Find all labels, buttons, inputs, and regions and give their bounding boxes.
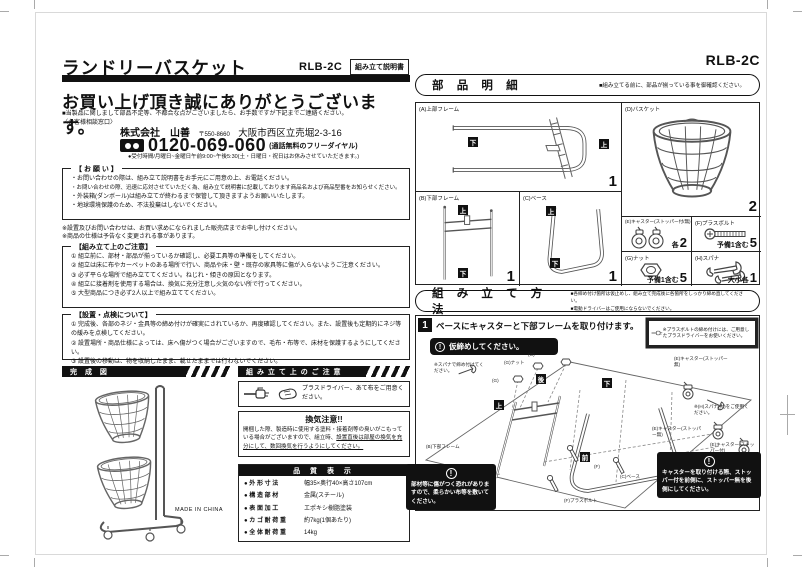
freedial-icon	[120, 139, 144, 152]
quality-value: 約7kg(1個あたり)	[304, 517, 351, 526]
quality-label: ● 外 形 寸 法	[244, 480, 304, 489]
part-qty: 各2	[672, 235, 687, 250]
caution-left-text: 部材等に傷がつく恐れがありますので、柔らかい布等を敷いてください。	[411, 482, 489, 505]
part-cell-a: (A)上部フレーム 下 上 1	[416, 103, 621, 191]
part-qty: 予備1含む5	[647, 270, 687, 285]
stripe-decoration	[186, 366, 230, 377]
request-item: ・地球環境保護のため、不法投棄はしないでください。	[71, 202, 403, 211]
step-number: 1	[418, 318, 432, 332]
assembly-caution-item: ④ 組立に接着剤を使用する場合は、換気に充分注意し火気のない所で行ってください。	[71, 281, 403, 290]
finished-figure-header: 完 成 図	[62, 366, 230, 377]
assembly-note-2: ■電動ドライバーはご使用にならないでください。	[571, 305, 747, 312]
assembly-header-notes: ■各締め付け箇所は仮止めし、組み立て完成後に各箇所をしっかり締め直してください。…	[571, 290, 747, 312]
diagram-label-nut: (G)ナット	[504, 360, 524, 366]
tool-note-text: ※プラスボルトの締め付けには、ご用意したプラスドライバーをお使いください。	[663, 327, 753, 340]
part-qty-prefix: 各	[672, 242, 679, 249]
inspection-box: 【設置・点検について】 ① 完成後、各部のネジ・金具等の締め付けが確実にされてい…	[62, 314, 410, 360]
reception-hours: ●受付時間/月曜日~金曜日午前9:00~午後5:30(土・日曜日・祝日はお休みさ…	[128, 153, 408, 161]
made-in-label: MADE IN CHINA	[175, 507, 223, 513]
model-number: RLB-2C	[299, 61, 342, 73]
inspection-title: 【設置・点検について】	[71, 310, 156, 320]
parts-header-label: 部 品 明 細	[416, 77, 523, 93]
crop-mark	[0, 555, 9, 556]
quality-value: 幅35×奥行40×高さ107cm	[304, 480, 372, 489]
exclamation-icon: !	[446, 468, 457, 479]
request-box: 【 お 願 い 】 ・お問い合わせの際は、組み立て説明書をお手元にご用意の上、お…	[62, 168, 410, 220]
assembly-caution-item: ③ 必ず平らな場所で組み立ててください。ねじれ・傾きの原因となります。	[71, 272, 403, 281]
direction-marker: 下	[602, 378, 612, 388]
step-title: ベースにキャスターと下部フレームを取り付けます。	[436, 320, 638, 332]
caution-box-left: ! 部材等に傷がつく恐れがありますので、柔らかい布等を敷いてください。	[406, 464, 496, 510]
inspection-item: ① 完成後、各部のネジ・金具等の締め付けが確実にされているか、再度確認してくださ…	[71, 321, 403, 340]
finished-figure-illustration	[84, 382, 209, 542]
parts-header-note: ■組み立てる前に、部品が揃っている事を御確認ください。	[599, 81, 745, 89]
quality-value: エポキシ樹脂塗装	[304, 505, 352, 514]
part-qty: 大小各1	[728, 270, 757, 285]
part-label: (D)バスケット	[625, 105, 660, 113]
assembly-caution-item: ② 組立は床に布やカーペットのある場所で行い、商品や床・壁・既存の家具等に傷が入…	[71, 262, 403, 271]
quality-row: ● 外 形 寸 法 幅35×奥行40×高さ107cm	[244, 480, 404, 489]
cloth-hand-icon	[277, 387, 299, 401]
crop-mark	[767, 558, 768, 567]
diagram-label-spanner-note: ※スパナで締め付けてください。	[434, 362, 486, 373]
diagram-label-lower-frame: (B)下部フレーム	[426, 444, 460, 450]
quality-row: ● 全 体 耐 荷 重 14kg	[244, 529, 404, 538]
direction-marker: 後	[536, 374, 546, 384]
part-qty: 2	[749, 198, 757, 215]
part-qty-prefix: 予備1含む	[717, 242, 749, 249]
crop-mark-center	[787, 395, 788, 435]
spec-note: ※商品の仕様は予告なく変更される事があります。	[62, 233, 198, 242]
model-number: RLB-2C	[706, 52, 760, 68]
precautions-header-label: 組 み 立 て 上 の ご 注 意	[238, 366, 366, 377]
screwdriver-icon	[243, 387, 277, 401]
part-qty: 1	[609, 268, 617, 285]
request-item: ・お問い合わせの際は、組み立て説明書をお手元にご用意の上、お電話ください。	[71, 175, 403, 184]
diagram-label-caster-free: (E)キャスター(ストッパー無)	[652, 426, 702, 437]
direction-marker: 下	[468, 137, 478, 147]
tools-box: プラスドライバー、あて布をご用意ください。	[238, 381, 410, 407]
part-cell-h: (H)スパナ 大小各1	[691, 251, 761, 286]
request-item: ・お問い合わせの際、迅速に応対させていただく為、組み立て説明書に記載しております…	[71, 184, 403, 192]
inspection-item: ② 設置場所・商品仕様によっては、床へ傷がつく場合がございますので、毛布・布等で…	[71, 340, 403, 359]
tool-note-box: ※プラスボルトの締め付けには、ご用意したプラスドライバーをお使いください。	[648, 320, 756, 346]
assembly-caution-title: 【組み立て上のご注意】	[71, 242, 156, 252]
part-cell-b: (B)下部フレーム 上 下 1	[416, 191, 519, 286]
direction-marker: 上	[599, 139, 609, 149]
direction-marker: 下	[458, 268, 468, 278]
crop-mark	[34, 0, 35, 9]
ventilation-box: 換気注意!! 開梱した際、製造時に使用する塗料・接着剤等の臭いがこもっている場合…	[238, 411, 410, 457]
right-page: RLB-2C 部 品 明 細 ■組み立てる前に、部品が揃っている事を御確認くださ…	[415, 52, 760, 547]
diagram-label-spanner-large: ※(H)スパナ(大)をご使用ください。	[694, 404, 750, 415]
part-qty: 予備1含む5	[717, 235, 757, 250]
diagram-label-base: (C)ベース	[620, 474, 640, 480]
quality-row: ● 構 造 部 材 金属(スチール)	[244, 492, 404, 501]
quality-value: 金属(スチール)	[304, 492, 344, 501]
quality-row: ● 表 面 加 工 エポキシ樹脂塗装	[244, 505, 404, 514]
assembly-note-1: ■各締め付け箇所は仮止めし、組み立て完成後に各箇所をしっかり締め直してください。	[571, 290, 747, 305]
phone-note: (通話無料のフリーダイヤル)	[269, 141, 357, 151]
direction-marker: 上	[546, 206, 556, 216]
assembly-caution-item: ① 組立前に、部材・部品が揃っているか確認し、必要工具等の準備をしてください。	[71, 253, 403, 262]
crop-mark	[34, 558, 35, 567]
diagram-label-g: (G)	[492, 378, 499, 384]
crop-mark	[793, 11, 802, 12]
finished-figure-header-label: 完 成 図	[62, 366, 186, 377]
quality-label: ● 表 面 加 工	[244, 505, 304, 514]
crop-mark	[0, 11, 9, 12]
quality-row: ● カ ゴ 耐 荷 重 約7kg(1個あたり)	[244, 517, 404, 526]
caution-box-right: ! キャスターを取り付ける際、ストッパー付を前側に、ストッパー無を後側にしてくだ…	[657, 452, 761, 498]
quality-label: ● 全 体 耐 荷 重	[244, 529, 304, 538]
direction-marker: 上	[494, 400, 504, 410]
parts-grid: (A)上部フレーム 下 上 1 (B)下部フレーム	[415, 102, 760, 285]
diagram-label-caster-free: (E)キャスター(ストッパー無)	[674, 356, 730, 367]
direction-marker: 下	[550, 258, 560, 268]
quality-label: ● 構 造 部 材	[244, 492, 304, 501]
part-qty-prefix: 予備1含む	[647, 277, 679, 284]
part-qty-prefix: 大小各	[728, 277, 749, 284]
ventilation-title: 換気注意!!	[243, 414, 405, 425]
header-rule	[62, 75, 410, 82]
parts-section-header: 部 品 明 細 ■組み立てる前に、部品が揃っている事を御確認ください。	[415, 74, 760, 96]
tools-note: プラスドライバー、あて布をご用意ください。	[302, 385, 405, 404]
crop-mark	[767, 0, 768, 9]
quality-header: 品 質 表 示	[239, 465, 409, 476]
assembly-caution-box: 【組み立て上のご注意】 ① 組立前に、部材・部品が揃っているか確認し、必要工具等…	[62, 246, 410, 308]
contact-lead: ■当製品に関しまして部品不足等、不都合な点がございましたら、お手数ですが下記まで…	[62, 110, 410, 119]
assembly-header-label: 組 み 立 て 方 法	[416, 285, 571, 317]
left-page: ランドリーバスケット RLB-2C 組み立て説明書 お買い上げ頂き誠にありがとう…	[62, 52, 410, 547]
part-qty: 1	[609, 173, 617, 190]
part-label: (G)ナット	[625, 254, 649, 262]
quality-value: 14kg	[304, 529, 317, 538]
stripe-decoration	[366, 366, 410, 377]
caution-right-text: キャスターを取り付ける際、ストッパー付を前側に、ストッパー無を後側にしてください…	[662, 470, 752, 493]
direction-marker: 上	[458, 205, 468, 215]
part-cell-e: (E)キャスター(ストッパー付/無) 各2	[621, 216, 691, 251]
part-cell-f: (F)プラスボルト 予備1含む5	[691, 216, 761, 251]
crop-mark	[793, 555, 802, 556]
quality-label: ● カ ゴ 耐 荷 重	[244, 517, 304, 526]
doc-type-badge: 組み立て説明書	[350, 59, 409, 75]
quality-box: 品 質 表 示 ● 外 形 寸 法 幅35×奥行40×高さ107cm ● 構 造…	[238, 464, 410, 542]
crop-mark-center	[780, 414, 795, 415]
diagram-label-f: (F)	[594, 464, 600, 470]
part-cell-g: (G)ナット 予備1含む5	[621, 251, 691, 286]
assembly-section-header: 組 み 立 て 方 法 ■各締め付け箇所は仮止めし、組み立て完成後に各箇所をしっ…	[415, 290, 760, 312]
screwdriver-icon	[651, 327, 663, 339]
part-label: (B)下部フレーム	[419, 194, 459, 202]
direction-marker: 前	[580, 452, 590, 462]
part-cell-c: (C)ベース 上 下 1	[519, 191, 621, 286]
part-label: (A)上部フレーム	[419, 105, 459, 113]
diagram-label-g: (G)	[528, 352, 535, 358]
part-cell-d: (D)バスケット 2	[621, 103, 761, 216]
precautions-header: 組 み 立 て 上 の ご 注 意	[238, 366, 410, 377]
request-box-title: 【 お 願 い 】	[71, 164, 122, 174]
contact-window-label: 〈お客様相談窓口〉	[62, 119, 116, 128]
assembly-caution-item: ⑤ 大型商品につき必ず2人以上で組み立ててください。	[71, 290, 403, 299]
part-qty: 1	[507, 268, 515, 285]
diagram-label-bolt: (F)プラスボルト	[564, 498, 597, 504]
request-item: ・外装箱(ダンボール)は組み立てが終わるまで保管して頂きますようお願いいたします…	[71, 193, 403, 202]
exclamation-icon: !	[704, 456, 715, 467]
part-label: (F)プラスボルト	[695, 219, 735, 227]
